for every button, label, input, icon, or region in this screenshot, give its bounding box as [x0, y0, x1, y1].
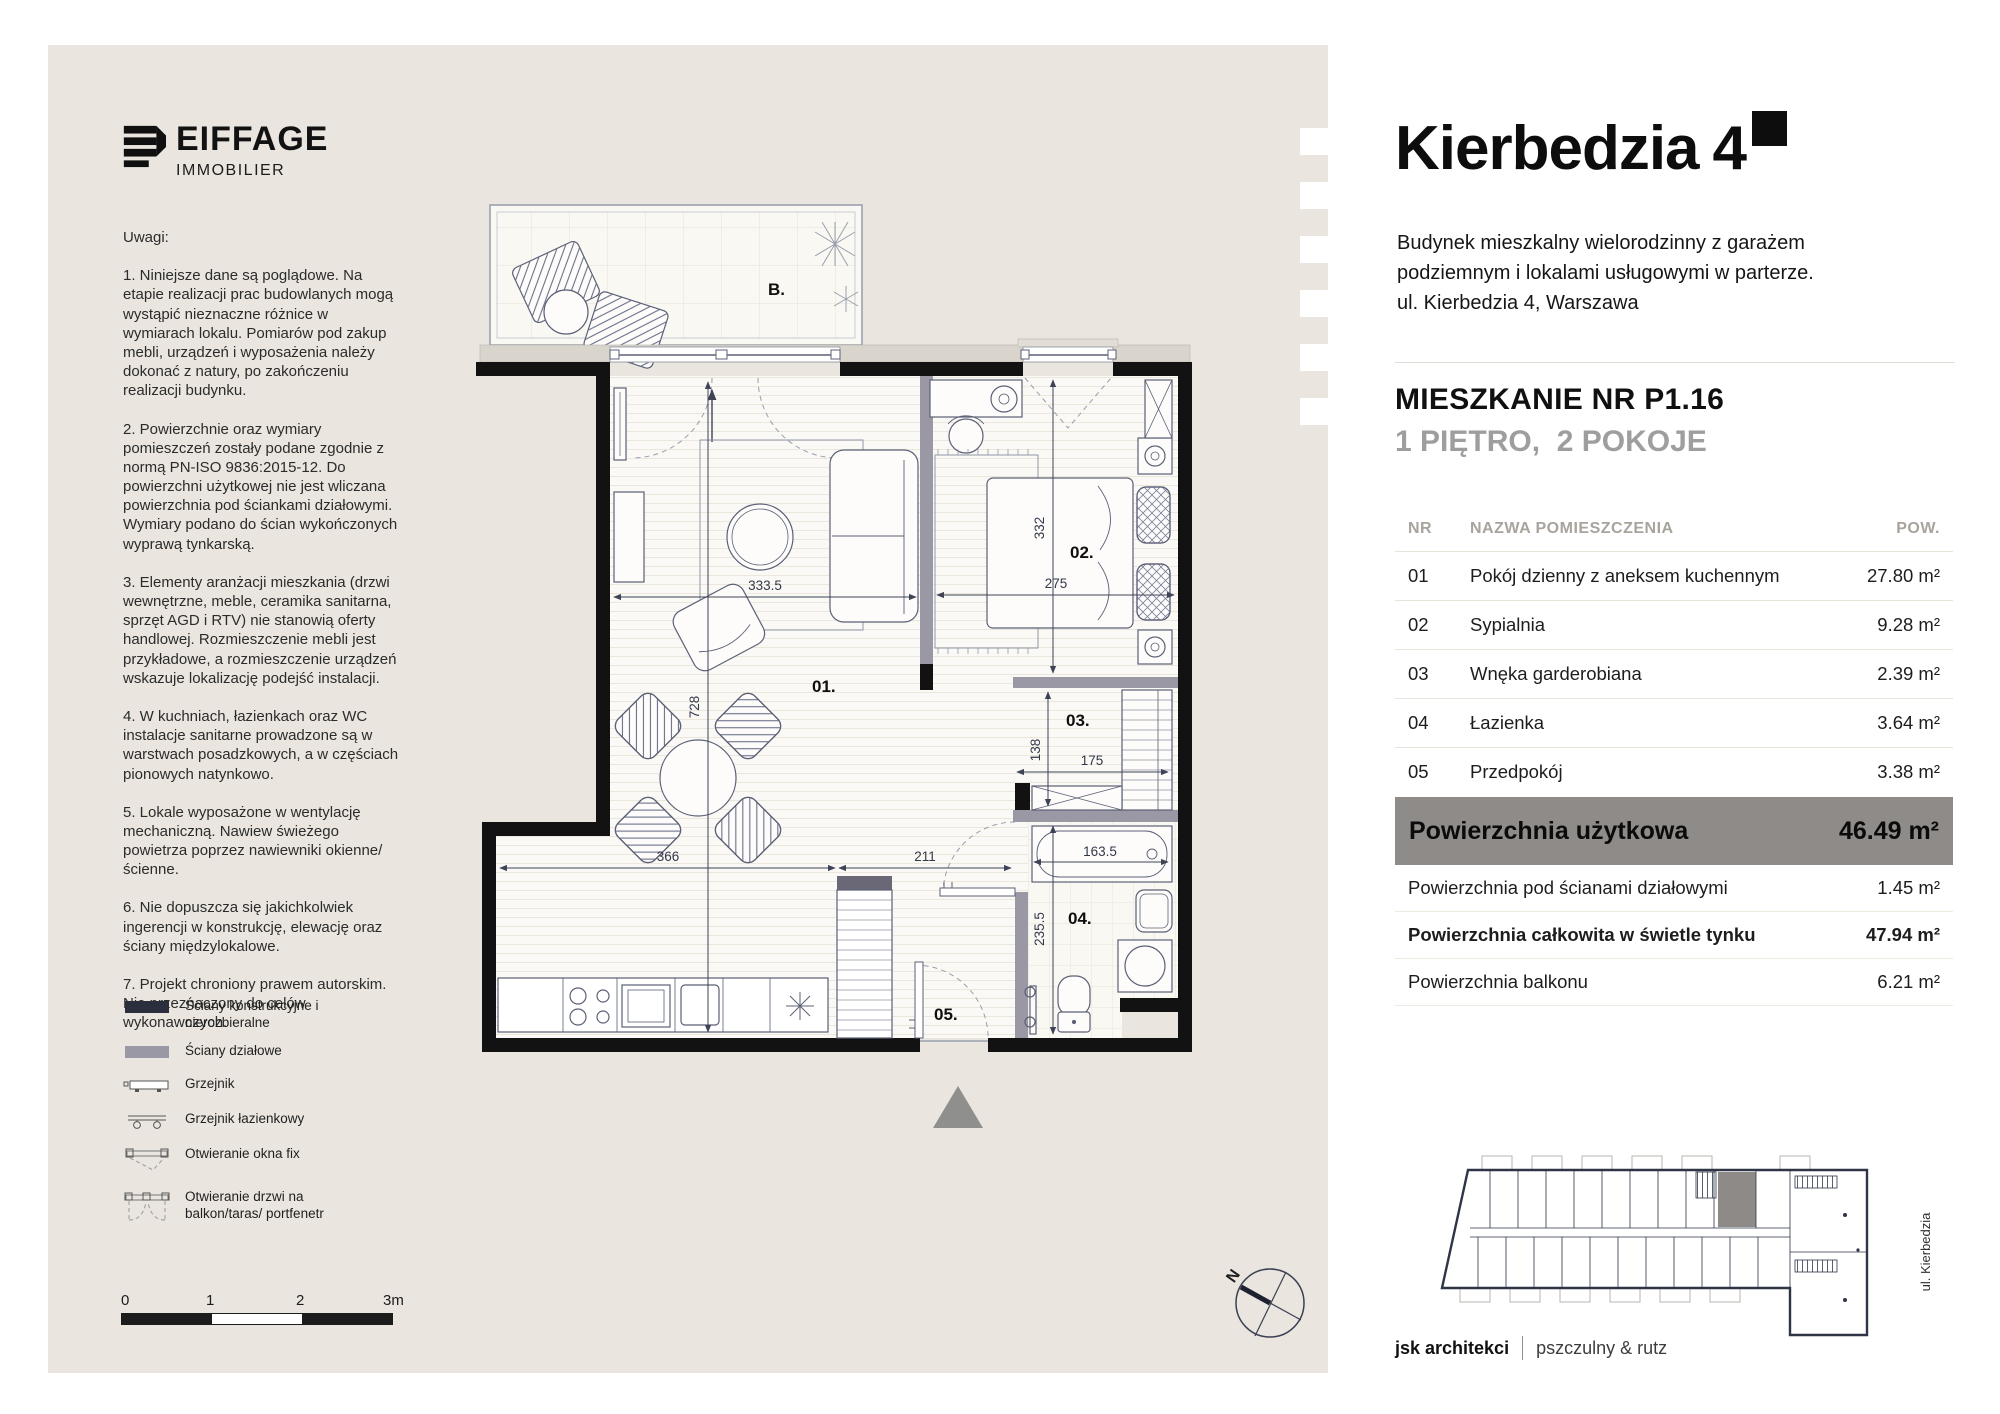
note-1: 1. Niniejsze dane są poglądowe. Na etapi… [123, 266, 403, 400]
building-key-plan: ul. Kierbedzia [1390, 1140, 1965, 1355]
footer-divider [1522, 1336, 1523, 1360]
keyplan-highlighted-unit [1718, 1172, 1756, 1227]
architects-footer: jsk architekci pszczulny & rutz [1395, 1336, 1667, 1360]
svg-text:04.: 04. [1068, 909, 1092, 928]
title-number: 4 [1713, 118, 1746, 180]
balcony-table [544, 290, 588, 334]
edge-notch [1300, 236, 1328, 263]
edge-notch [1300, 344, 1328, 371]
edge-notch [1300, 128, 1328, 155]
notes-column: Uwagi: 1. Niniejsze dane są poglądowe. N… [123, 228, 403, 1052]
table-row: 05 Przedpokój 3.38 m² [1395, 748, 1953, 796]
street-label: ul. Kierbedzia [1918, 1212, 1933, 1292]
studio-name: jsk architekci [1395, 1338, 1509, 1359]
brand-name: EIFFAGE [176, 122, 328, 156]
brand-logo: EIFFAGE IMMOBILIER [120, 122, 328, 180]
svg-text:235.5: 235.5 [1032, 912, 1047, 946]
project-subtitle: Budynek mieszkalny wielorodzinny z garaż… [1397, 228, 1814, 318]
svg-text:138: 138 [1028, 739, 1043, 762]
table-row: 03 Wnęka garderobiana 2.39 m² [1395, 650, 1953, 698]
keyplan-stair [1795, 1260, 1837, 1272]
scale-bar: 0 1 2 3m [121, 1292, 401, 1325]
note-2: 2. Powierzchnie oraz wymiary pomieszczeń… [123, 420, 403, 554]
edge-notch [1300, 398, 1328, 425]
svg-text:366: 366 [657, 849, 680, 864]
svg-text:163.5: 163.5 [1083, 844, 1117, 859]
rooms-table: NR NAZWA POMIESZCZENIA POW. 01 Pokój dzi… [1395, 510, 1953, 1006]
scale-0: 0 [121, 1292, 129, 1309]
bedroom-window [1018, 339, 1118, 362]
title-square-mark [1752, 111, 1787, 146]
table-row: 02 Sypialnia 9.28 m² [1395, 601, 1953, 649]
compass-north-label: N [1223, 1267, 1244, 1286]
wall-structural-icon [123, 998, 185, 1020]
notes-heading: Uwagi: [123, 228, 403, 247]
svg-text:275: 275 [1045, 576, 1068, 591]
table-row: 04 Łazienka 3.64 m² [1395, 699, 1953, 747]
svg-text:333.5: 333.5 [748, 578, 782, 593]
sheet: EIFFAGE IMMOBILIER Uwagi: 1. Niniejsze d… [0, 0, 2000, 1414]
title-text: Kierbedzia [1395, 118, 1699, 180]
edge-notch [1300, 290, 1328, 317]
note-3: 3. Elementy aranżacji mieszkania (drzwi … [123, 573, 403, 688]
legend-item: Otwieranie drzwi na balkon/taras/ portfe… [123, 1189, 453, 1229]
balcony-door-icon [123, 1189, 185, 1229]
wardrobe-cap [837, 876, 892, 890]
eiffage-logo-icon [120, 122, 166, 175]
balcony-label: B. [768, 280, 785, 299]
balcony-door [610, 347, 840, 362]
scale-3m: 3m [383, 1292, 404, 1309]
edge-notch [1300, 182, 1328, 209]
table-header: NR NAZWA POMIESZCZENIA POW. [1395, 510, 1953, 551]
scale-2: 2 [296, 1292, 304, 1309]
project-title: Kierbedzia 4 [1395, 118, 1787, 180]
partners-name: pszczulny & rutz [1536, 1338, 1667, 1359]
svg-text:728: 728 [687, 696, 702, 719]
note-4: 4. W kuchniach, łazienkach oraz WC insta… [123, 707, 403, 784]
window-fix-icon [123, 1146, 185, 1178]
extra-area-row: Powierzchnia całkowita w świetle tynku 4… [1395, 912, 1953, 958]
scale-bar-strip [121, 1313, 393, 1325]
floor-room-info: 1 PIĘTRO, 2 POKOJE [1395, 425, 1707, 459]
svg-text:05.: 05. [934, 1005, 958, 1024]
keyplan-stair [1696, 1172, 1716, 1198]
wall-recess [1122, 1012, 1178, 1038]
section-divider [1395, 362, 1955, 363]
apartment-number: MIESZKANIE NR P1.16 [1395, 383, 1724, 417]
compass-rose: N [1223, 1256, 1318, 1351]
svg-text:03.: 03. [1066, 711, 1090, 730]
extra-area-row: Powierzchnia pod ścianami działowymi 1.4… [1395, 865, 1953, 911]
wall-partition-icon [123, 1043, 185, 1065]
extra-area-row: Powierzchnia balkonu 6.21 m² [1395, 959, 1953, 1005]
svg-text:01.: 01. [812, 677, 836, 696]
svg-text:332: 332 [1032, 517, 1047, 540]
bathroom-radiator-icon [123, 1111, 185, 1135]
note-5: 5. Lokale wyposażone w wentylację mechan… [123, 803, 403, 880]
svg-text:175: 175 [1081, 753, 1104, 768]
svg-text:211: 211 [914, 849, 936, 864]
keyplan-stair [1795, 1176, 1837, 1188]
radiator-icon [123, 1076, 185, 1100]
entrance-marker [933, 1086, 983, 1128]
floor-plan: B. [365, 130, 1195, 1140]
legend-item: Otwieranie okna fix [123, 1146, 453, 1178]
scale-1: 1 [206, 1292, 214, 1309]
note-6: 6. Nie dopuszcza się jakichkolwiek inger… [123, 898, 403, 956]
table-row: 01 Pokój dzienny z aneksem kuchennym 27.… [1395, 552, 1953, 600]
svg-text:02.: 02. [1070, 543, 1094, 562]
total-area-band: Powierzchnia użytkowa 46.49 m² [1395, 797, 1953, 865]
brand-division: IMMOBILIER [176, 162, 328, 180]
